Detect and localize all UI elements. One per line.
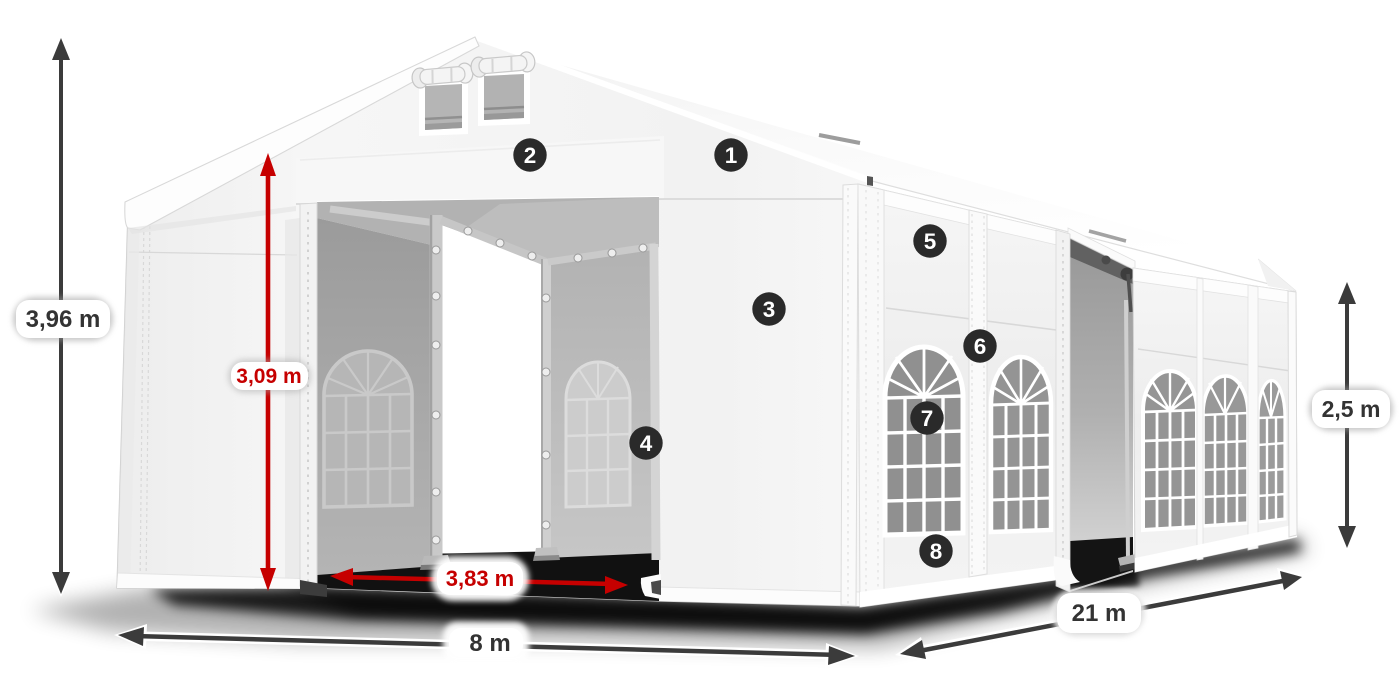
svg-text:8 m: 8 m (469, 630, 510, 657)
svg-text:1: 1 (725, 143, 738, 168)
svg-text:2: 2 (524, 143, 537, 168)
svg-text:2,5 m: 2,5 m (1322, 396, 1381, 422)
svg-text:6: 6 (974, 334, 987, 359)
svg-text:5: 5 (924, 229, 937, 254)
svg-text:8: 8 (930, 539, 943, 564)
svg-text:21 m: 21 m (1072, 600, 1127, 627)
svg-text:3,83 m: 3,83 m (446, 566, 515, 591)
svg-text:3,09 m: 3,09 m (236, 365, 301, 388)
svg-text:3: 3 (763, 297, 776, 322)
svg-text:3,96 m: 3,96 m (26, 306, 101, 333)
svg-text:4: 4 (640, 431, 653, 456)
svg-text:7: 7 (921, 406, 934, 431)
